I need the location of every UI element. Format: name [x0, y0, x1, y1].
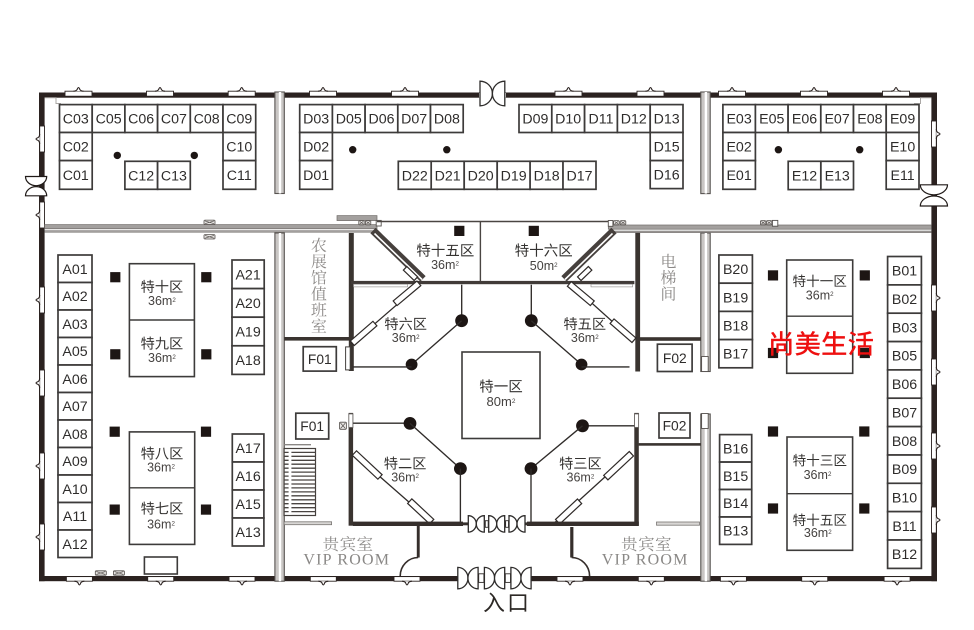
- svg-text:C06: C06: [128, 112, 154, 128]
- svg-text:C07: C07: [161, 112, 187, 128]
- svg-text:E05: E05: [759, 112, 784, 128]
- svg-text:A20: A20: [235, 296, 260, 312]
- svg-text:D16: D16: [654, 168, 680, 184]
- svg-text:B06: B06: [892, 377, 917, 393]
- svg-text:36m2: 36m2: [148, 294, 176, 308]
- svg-text:B05: B05: [892, 349, 917, 365]
- svg-text:D07: D07: [401, 112, 427, 128]
- svg-text:VIP ROOM: VIP ROOM: [303, 552, 390, 569]
- svg-text:C12: C12: [128, 168, 154, 184]
- svg-text:D20: D20: [468, 168, 494, 184]
- svg-text:36m2: 36m2: [804, 526, 832, 540]
- svg-text:E13: E13: [825, 169, 850, 185]
- svg-text:A02: A02: [62, 289, 87, 305]
- svg-text:36m2: 36m2: [806, 288, 834, 302]
- svg-text:E03: E03: [726, 112, 751, 128]
- svg-text:36m2: 36m2: [567, 471, 595, 485]
- svg-text:E08: E08: [857, 112, 882, 128]
- svg-text:50m2: 50m2: [530, 259, 558, 273]
- svg-text:A18: A18: [235, 353, 260, 369]
- svg-text:B02: B02: [892, 292, 917, 308]
- svg-text:VIP ROOM: VIP ROOM: [602, 552, 689, 569]
- svg-text:80m2: 80m2: [487, 394, 516, 409]
- svg-text:E07: E07: [824, 112, 849, 128]
- svg-text:A07: A07: [62, 399, 87, 415]
- svg-text:D12: D12: [621, 112, 647, 128]
- svg-text:36m2: 36m2: [147, 518, 175, 532]
- svg-text:D11: D11: [589, 112, 614, 128]
- svg-text:36m2: 36m2: [391, 470, 419, 484]
- svg-text:D10: D10: [555, 112, 581, 128]
- svg-text:F02: F02: [663, 419, 687, 434]
- svg-text:B16: B16: [723, 441, 748, 457]
- svg-text:A16: A16: [235, 469, 260, 485]
- svg-text:36m2: 36m2: [571, 331, 599, 345]
- svg-text:36m2: 36m2: [147, 461, 175, 475]
- svg-text:D05: D05: [336, 112, 362, 128]
- svg-text:E12: E12: [792, 169, 817, 185]
- svg-text:36m2: 36m2: [804, 468, 832, 482]
- svg-text:B07: B07: [892, 405, 917, 421]
- svg-text:36m2: 36m2: [148, 351, 176, 365]
- svg-text:A21: A21: [235, 267, 260, 283]
- svg-text:D17: D17: [566, 168, 592, 184]
- svg-text:B01: B01: [892, 264, 917, 280]
- svg-text:D09: D09: [522, 112, 548, 128]
- svg-text:D13: D13: [654, 112, 680, 128]
- svg-text:36m2: 36m2: [392, 331, 420, 345]
- svg-text:D19: D19: [501, 168, 527, 184]
- svg-text:E09: E09: [890, 112, 915, 128]
- svg-text:A01: A01: [62, 262, 87, 278]
- svg-text:D15: D15: [654, 140, 680, 156]
- svg-text:C01: C01: [63, 168, 89, 184]
- svg-text:A05: A05: [62, 344, 87, 360]
- svg-text:D06: D06: [368, 112, 394, 128]
- svg-text:A08: A08: [62, 427, 87, 443]
- svg-text:36m2: 36m2: [431, 258, 459, 272]
- svg-text:A12: A12: [62, 537, 87, 553]
- svg-text:A03: A03: [62, 317, 87, 333]
- svg-text:A10: A10: [62, 482, 87, 498]
- svg-text:A09: A09: [62, 454, 87, 470]
- svg-text:E10: E10: [890, 140, 915, 156]
- svg-text:C11: C11: [227, 168, 252, 184]
- svg-text:A17: A17: [235, 441, 260, 457]
- svg-text:B14: B14: [723, 496, 748, 512]
- svg-text:A06: A06: [62, 372, 87, 388]
- svg-text:B17: B17: [723, 347, 748, 363]
- svg-text:A15: A15: [235, 497, 260, 513]
- svg-text:B09: B09: [892, 462, 917, 478]
- svg-text:B10: B10: [892, 491, 917, 507]
- svg-text:A19: A19: [235, 325, 260, 341]
- svg-text:D18: D18: [534, 168, 560, 184]
- svg-text:D03: D03: [303, 112, 329, 128]
- svg-text:A13: A13: [235, 525, 260, 541]
- svg-text:E11: E11: [890, 168, 914, 184]
- svg-text:D22: D22: [402, 168, 428, 184]
- svg-text:A11: A11: [63, 509, 87, 525]
- svg-text:B08: B08: [892, 434, 917, 450]
- svg-text:D08: D08: [434, 112, 460, 128]
- svg-text:B15: B15: [723, 469, 748, 485]
- svg-text:C13: C13: [161, 168, 187, 184]
- svg-text:D01: D01: [303, 168, 329, 184]
- svg-text:C10: C10: [226, 140, 252, 156]
- svg-text:F01: F01: [308, 352, 332, 367]
- svg-text:E06: E06: [792, 112, 817, 128]
- svg-text:C09: C09: [226, 112, 252, 128]
- svg-text:C02: C02: [63, 140, 89, 156]
- svg-text:B18: B18: [723, 319, 748, 335]
- svg-text:C05: C05: [96, 112, 122, 128]
- svg-text:C08: C08: [194, 112, 220, 128]
- svg-text:E01: E01: [726, 168, 751, 184]
- svg-text:F02: F02: [663, 351, 687, 366]
- svg-text:B19: B19: [723, 290, 748, 306]
- svg-text:B03: B03: [892, 320, 917, 336]
- svg-text:B12: B12: [892, 547, 917, 563]
- svg-text:B20: B20: [723, 262, 748, 278]
- svg-text:C03: C03: [63, 112, 89, 128]
- svg-text:D02: D02: [303, 140, 329, 156]
- svg-text:F01: F01: [300, 419, 324, 434]
- svg-text:D21: D21: [435, 168, 461, 184]
- svg-text:B11: B11: [892, 519, 916, 535]
- svg-text:B13: B13: [723, 524, 748, 540]
- svg-text:E02: E02: [726, 140, 751, 156]
